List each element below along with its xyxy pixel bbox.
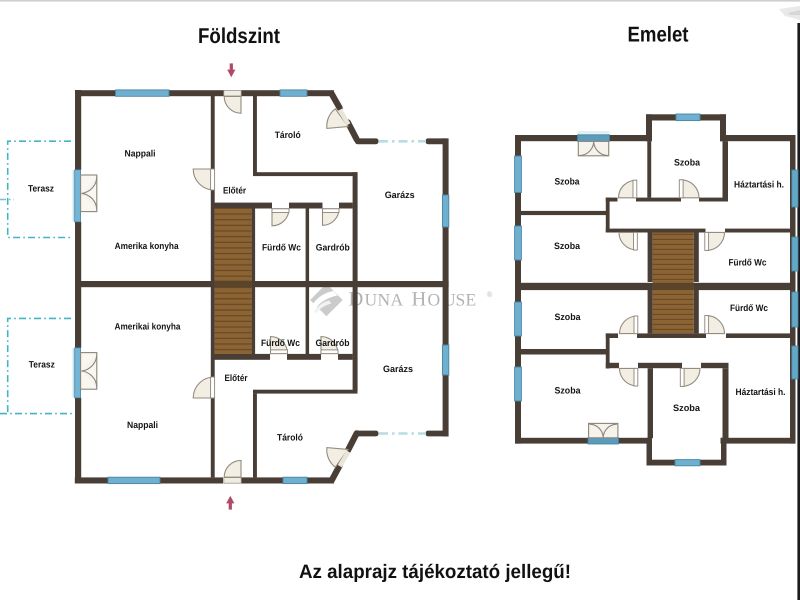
svg-text:Tároló: Tároló xyxy=(277,432,303,442)
svg-text:Nappali: Nappali xyxy=(127,420,158,430)
svg-text:E: E xyxy=(466,290,477,310)
svg-text:Szoba: Szoba xyxy=(673,403,701,413)
svg-text:Szoba: Szoba xyxy=(555,177,581,187)
svg-text:U: U xyxy=(365,290,378,310)
svg-text:Gardrób: Gardrób xyxy=(316,243,350,253)
svg-text:Fürdő Wc: Fürdő Wc xyxy=(730,303,768,313)
svg-text:Fürdő Wc: Fürdő Wc xyxy=(262,243,301,253)
svg-text:O: O xyxy=(428,290,441,310)
svg-text:Nappali: Nappali xyxy=(125,148,156,158)
svg-text:Amerika konyha: Amerika konyha xyxy=(115,241,180,251)
svg-text:N: N xyxy=(378,290,391,310)
svg-text:H: H xyxy=(412,289,427,311)
svg-text:®: ® xyxy=(487,290,493,299)
svg-text:Előtér: Előtér xyxy=(225,373,248,383)
svg-text:Szoba: Szoba xyxy=(555,312,582,322)
svg-text:Terasz: Terasz xyxy=(28,184,54,194)
svg-text:Garázs: Garázs xyxy=(383,364,413,374)
svg-text:Tároló: Tároló xyxy=(275,130,301,140)
svg-text:Háztartási h.: Háztartási h. xyxy=(736,387,786,397)
svg-text:Szoba: Szoba xyxy=(674,158,701,168)
svg-text:Gardrób: Gardrób xyxy=(316,338,350,348)
svg-text:Háztartási h.: Háztartási h. xyxy=(734,180,784,190)
svg-text:Szoba: Szoba xyxy=(555,385,582,395)
svg-text:Az alaprajz tájékoztató jelleg: Az alaprajz tájékoztató jellegű! xyxy=(299,561,571,583)
svg-text:S: S xyxy=(456,290,466,310)
svg-text:Fürdő Wc: Fürdő Wc xyxy=(729,258,767,268)
svg-text:Előtér: Előtér xyxy=(223,186,246,196)
svg-text:Szoba: Szoba xyxy=(554,241,581,251)
svg-text:Amerikai konyha: Amerikai konyha xyxy=(115,322,182,332)
svg-text:Földszint: Földszint xyxy=(198,24,280,48)
svg-text:Terasz: Terasz xyxy=(29,359,55,369)
svg-text:Fürdő Wc: Fürdő Wc xyxy=(261,338,300,348)
svg-text:Garázs: Garázs xyxy=(385,190,415,200)
svg-text:A: A xyxy=(391,290,404,310)
svg-text:Emelet: Emelet xyxy=(628,23,689,47)
